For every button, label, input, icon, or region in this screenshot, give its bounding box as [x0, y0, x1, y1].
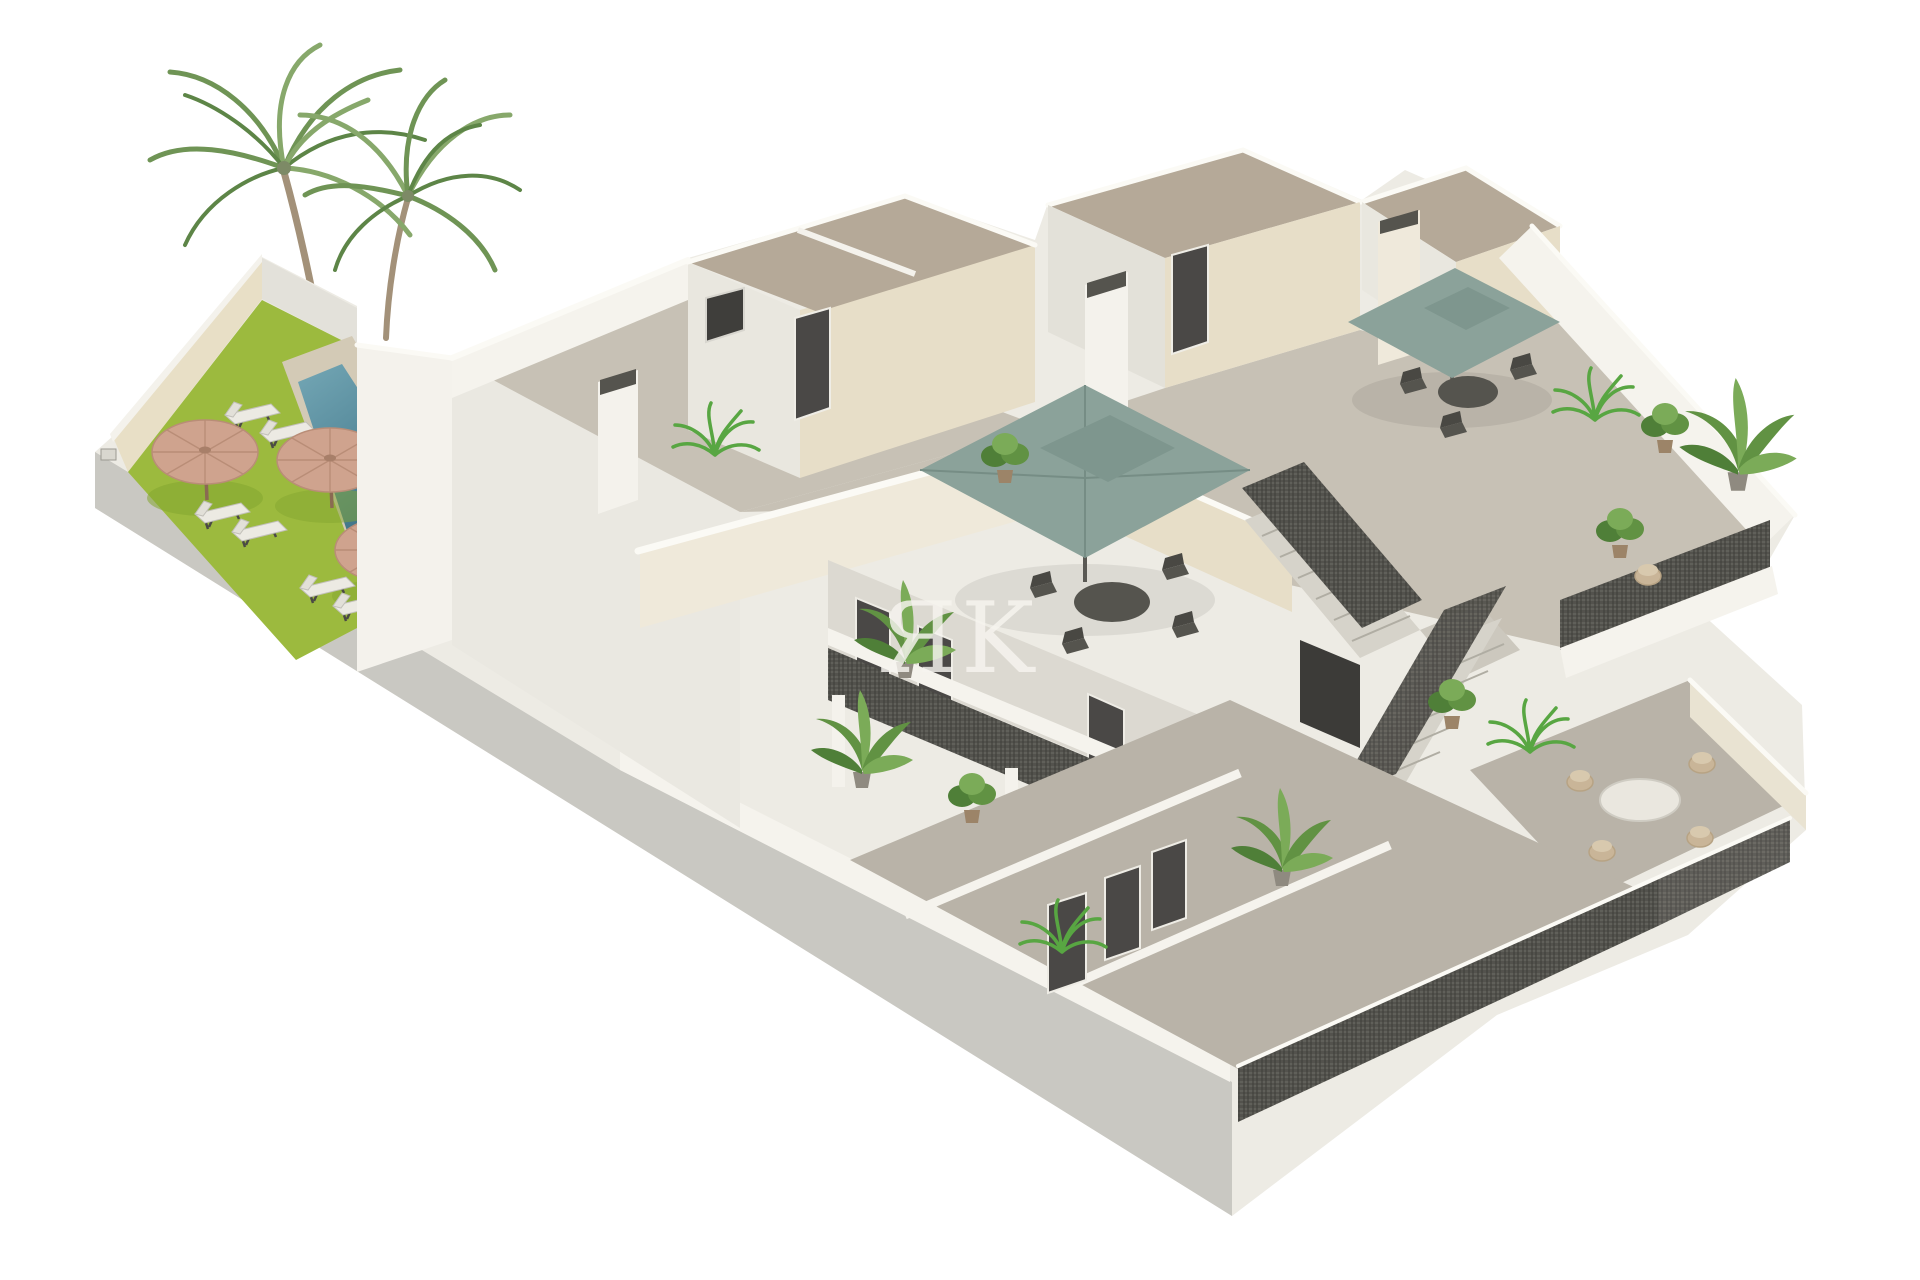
palm-crown-right	[300, 80, 520, 270]
garden-side-table	[101, 449, 116, 460]
patio-window	[1152, 840, 1186, 930]
watermark-logo: ЯK	[878, 582, 1038, 696]
chimney-west	[598, 369, 638, 514]
render-canvas: ЯK	[0, 0, 1920, 1280]
corner-tower-face	[357, 345, 452, 672]
roof-access-door	[1172, 245, 1208, 354]
roof-dining-table	[1074, 582, 1150, 622]
patio-door	[1105, 866, 1140, 960]
walkway-post	[832, 695, 845, 787]
roof-dining-table	[1438, 376, 1498, 408]
roof-access-door	[795, 308, 830, 420]
architectural-render: ЯK	[0, 0, 1920, 1280]
palm-crown-left	[150, 45, 425, 245]
terrace-round-table	[1600, 779, 1680, 821]
